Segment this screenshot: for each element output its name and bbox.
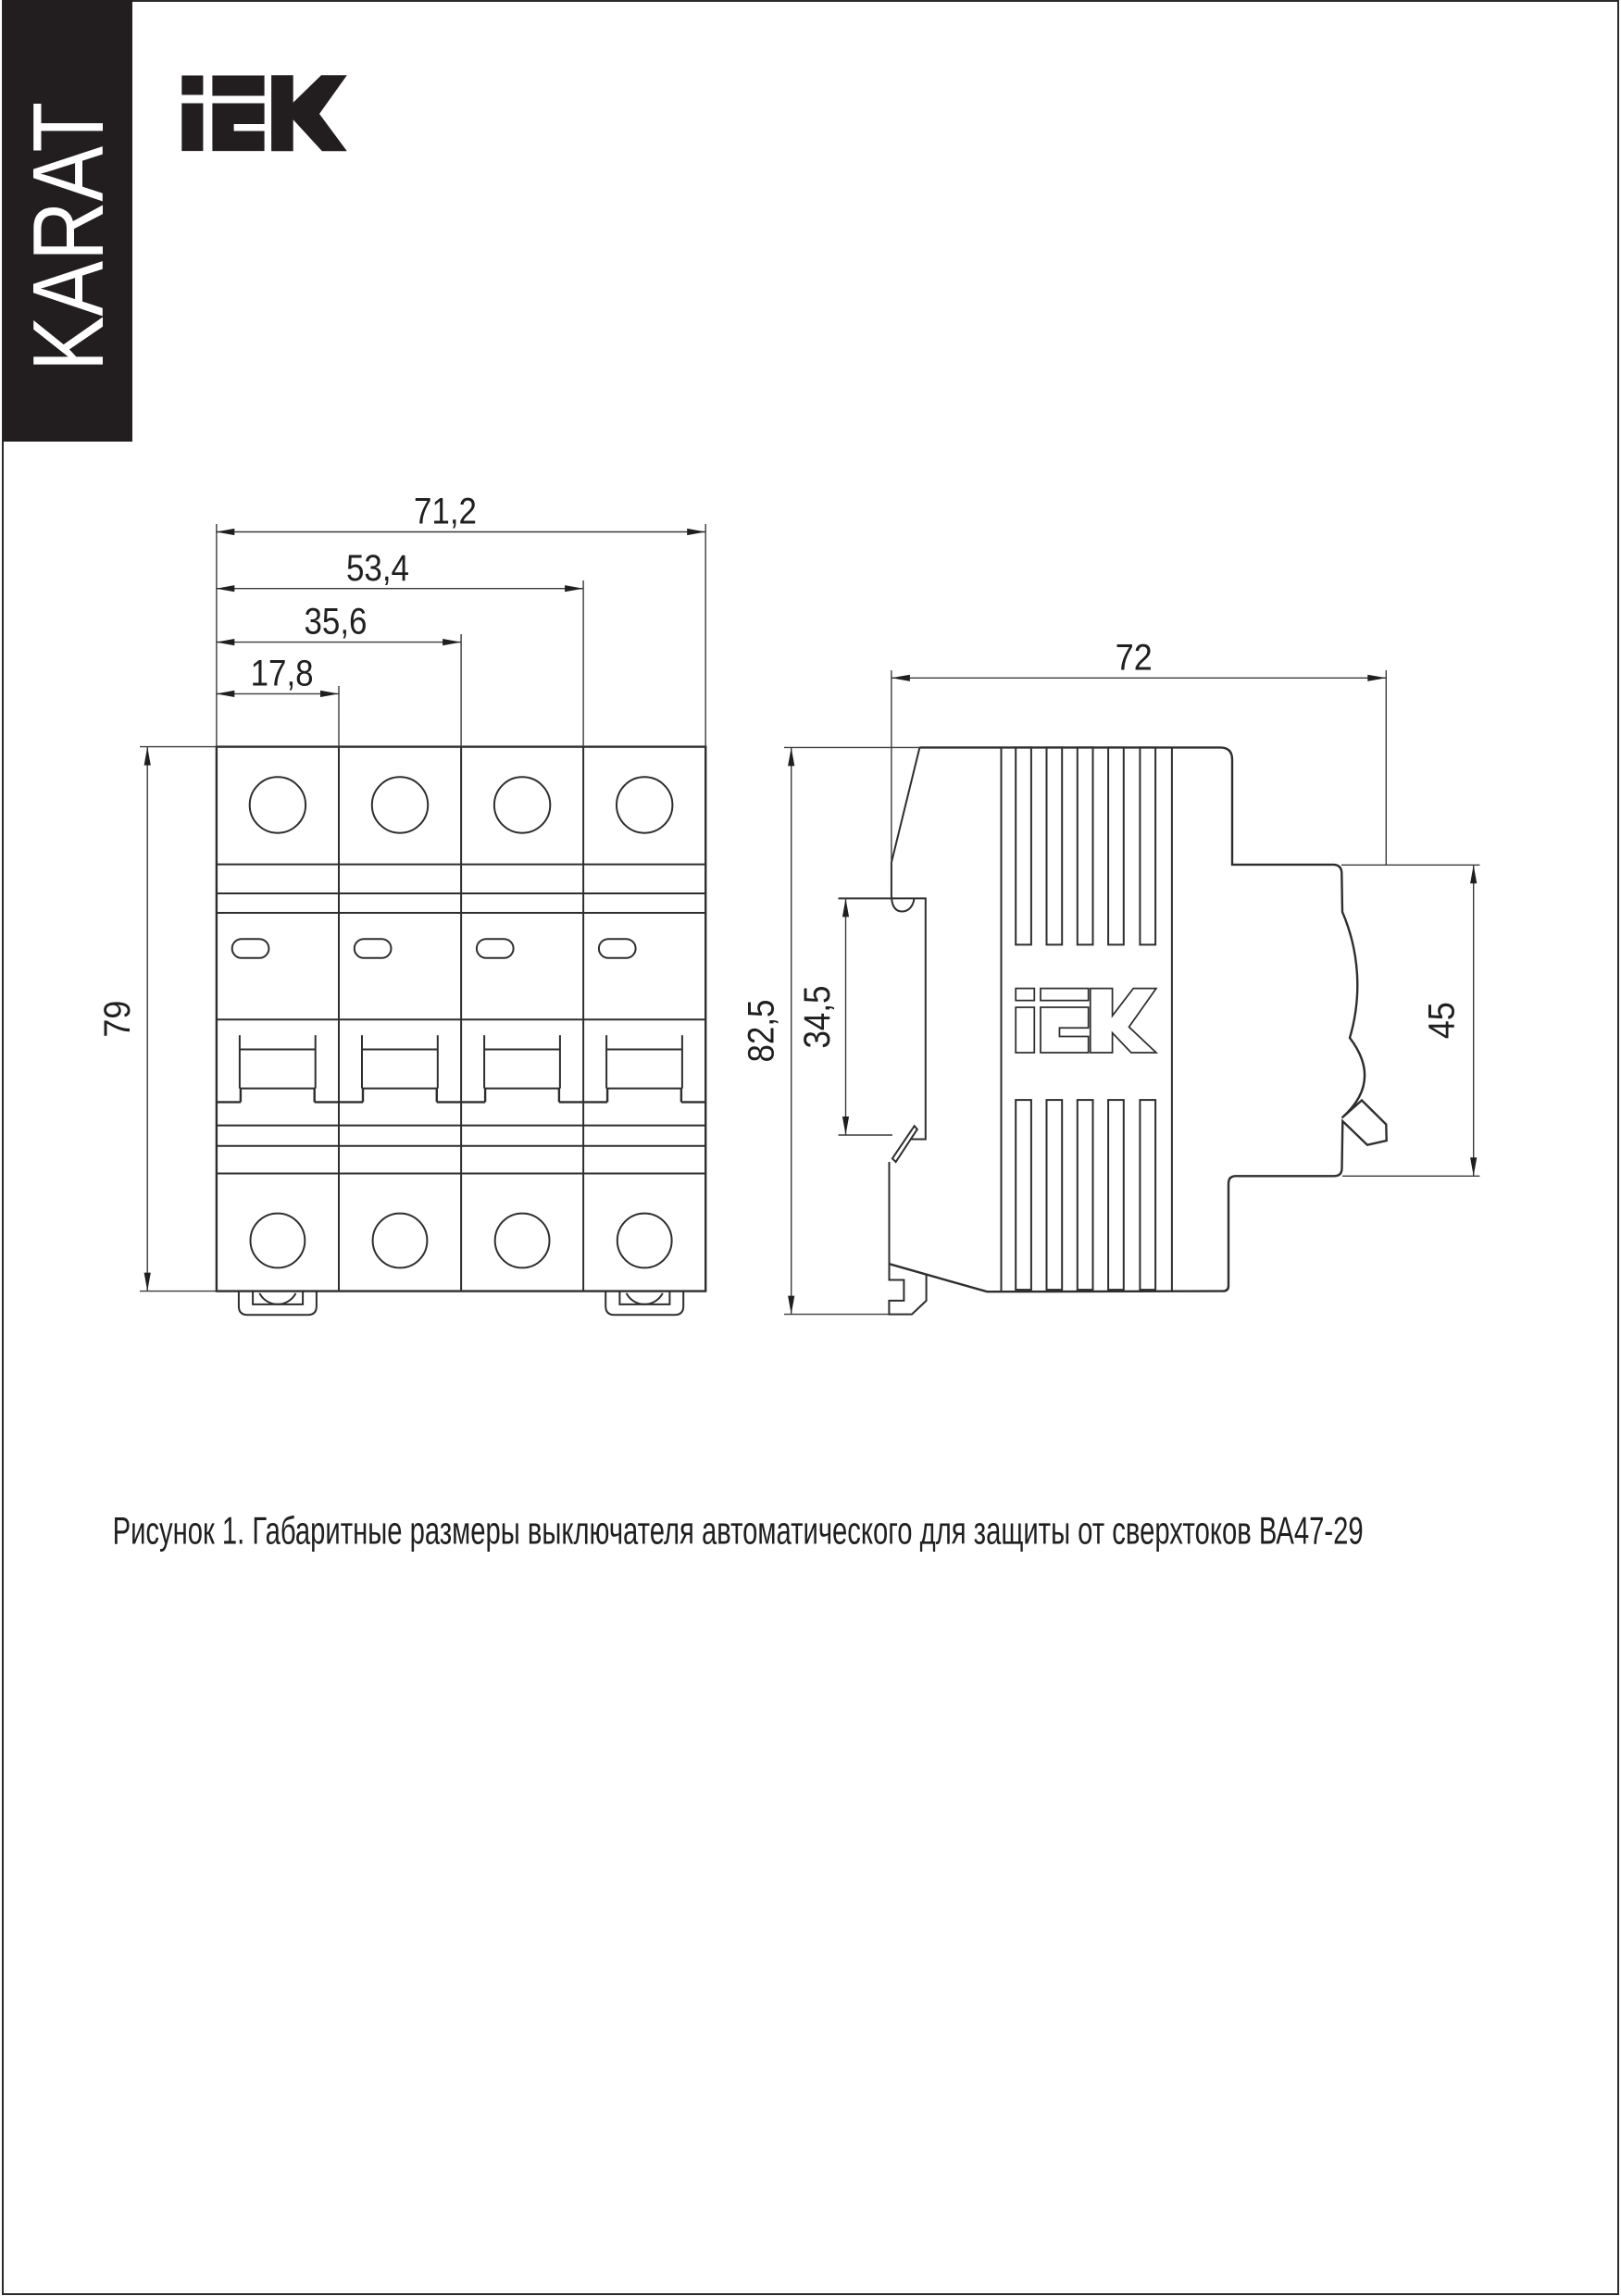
svg-text:71,2: 71,2 (414, 492, 477, 532)
svg-text:82,5: 82,5 (742, 1000, 782, 1063)
svg-text:KARAT: KARAT (12, 102, 125, 371)
svg-text:45: 45 (1422, 1002, 1463, 1039)
svg-text:72: 72 (1116, 637, 1153, 678)
svg-text:35,6: 35,6 (305, 602, 368, 643)
svg-text:Рисунок 1. Габаритные размеры: Рисунок 1. Габаритные размеры выключател… (113, 1510, 1364, 1553)
svg-text:53,4: 53,4 (346, 548, 409, 589)
svg-text:34,5: 34,5 (797, 986, 838, 1049)
svg-text:17,8: 17,8 (251, 654, 314, 694)
svg-text:79: 79 (97, 1001, 138, 1038)
